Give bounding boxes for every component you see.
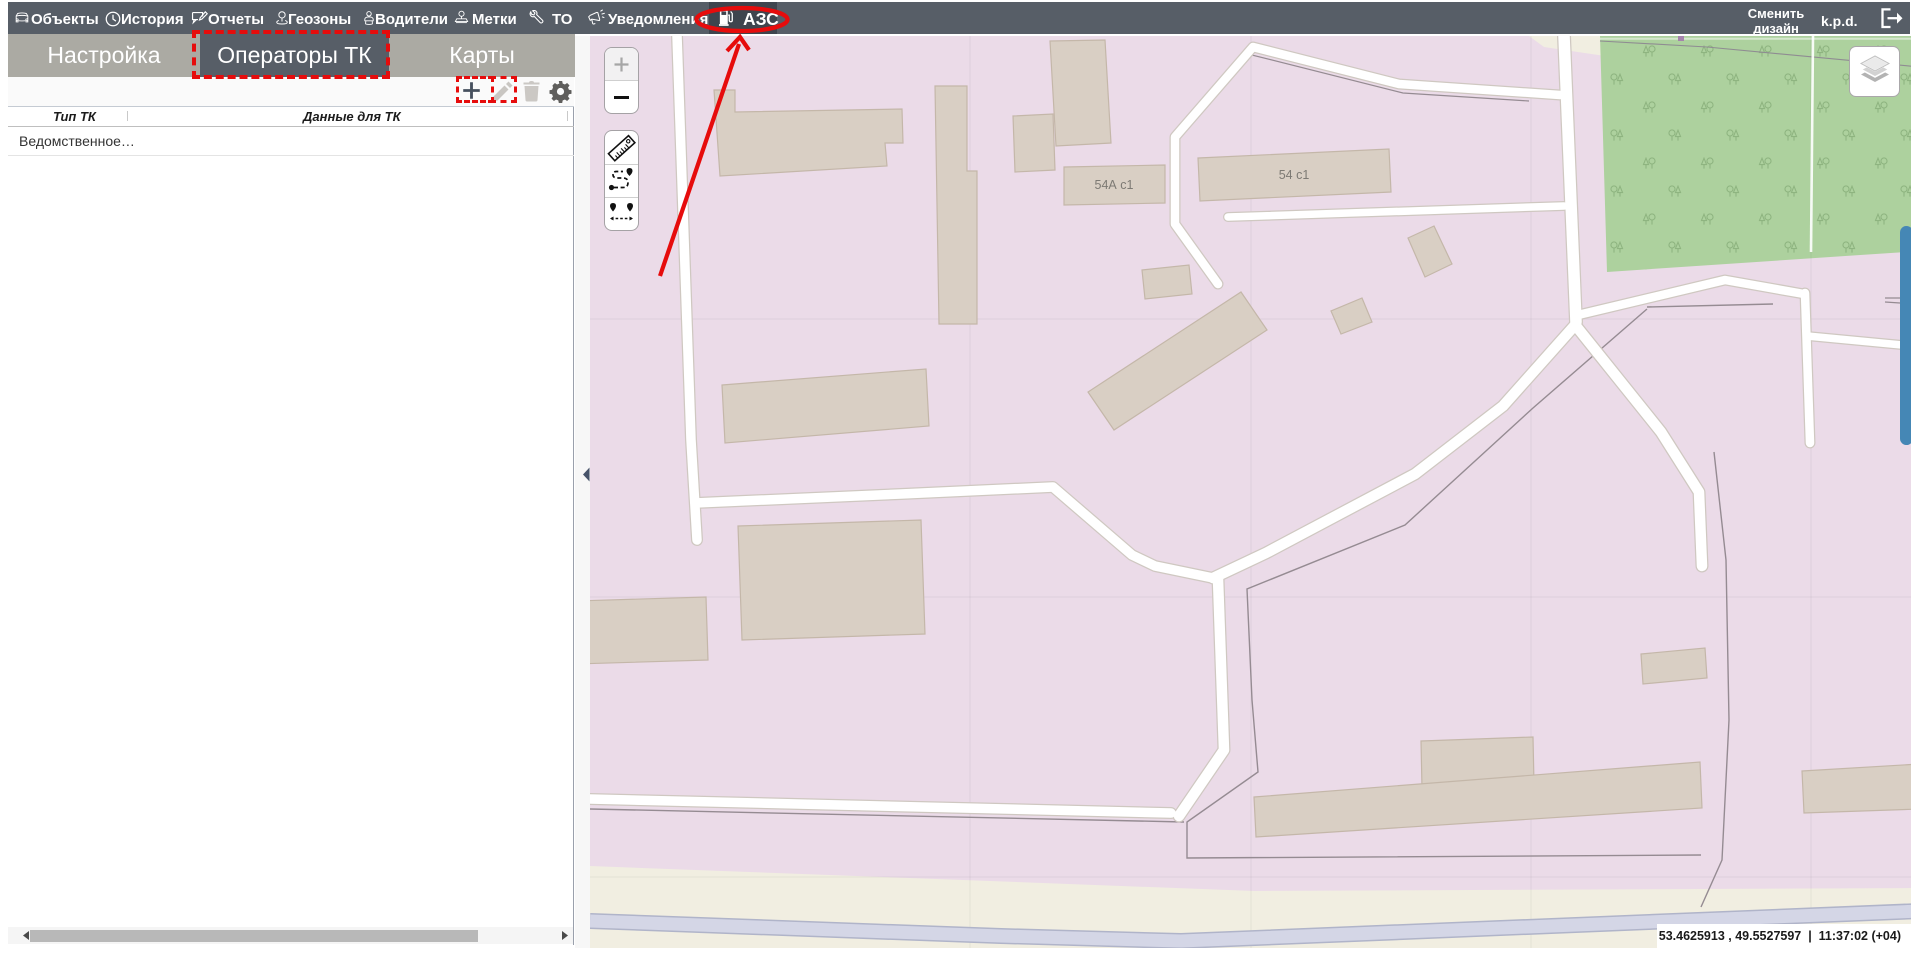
svg-text:54А с1: 54А с1 [1095,178,1134,192]
svg-text:54 с1: 54 с1 [1279,168,1310,182]
